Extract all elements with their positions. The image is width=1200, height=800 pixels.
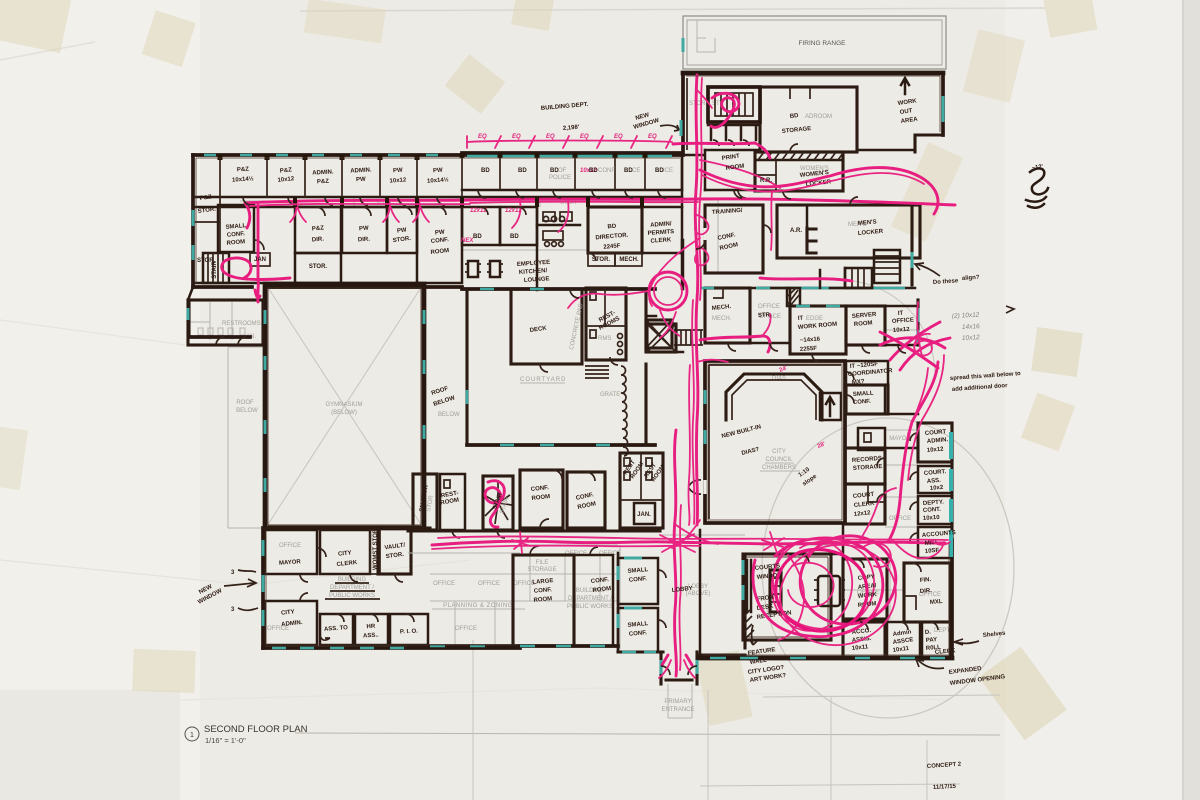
svg-text:PAY: PAY <box>926 637 938 644</box>
svg-text:OF: OF <box>558 168 567 174</box>
svg-text:CONF: CONF <box>598 168 615 174</box>
svg-text:P&Z: P&Z <box>317 179 330 186</box>
svg-text:COUNCIL: COUNCIL <box>765 457 793 463</box>
svg-text:OFFICE: OFFICE <box>478 581 500 587</box>
svg-text:MECH.: MECH. <box>619 257 639 263</box>
svg-text:DIR.: DIR. <box>920 588 933 595</box>
svg-text:2255F: 2255F <box>800 346 818 353</box>
svg-text:BD: BD <box>510 234 519 240</box>
svg-text:DIR.: DIR. <box>358 237 371 244</box>
svg-text:COURTYARD: COURTYARD <box>520 377 566 383</box>
svg-text:R.R.: R.R. <box>760 178 772 184</box>
svg-text:DIR.: DIR. <box>312 236 325 243</box>
svg-text:STOR.: STOR. <box>309 264 328 270</box>
svg-text:12x12: 12x12 <box>505 208 522 214</box>
svg-text:HR: HR <box>366 624 376 631</box>
svg-text:1: 1 <box>190 732 194 739</box>
svg-text:10SF: 10SF <box>925 548 940 555</box>
svg-text:10x10: 10x10 <box>923 515 941 522</box>
svg-text:align?: align? <box>962 275 980 282</box>
svg-text:CONT.: CONT. <box>923 507 942 514</box>
svg-text:EQ: EQ <box>580 134 589 140</box>
svg-text:ADMIN.: ADMIN. <box>312 169 334 176</box>
svg-text:BD: BD <box>607 224 617 231</box>
svg-text:POLICE: POLICE <box>549 175 571 181</box>
svg-text:P&Z: P&Z <box>237 167 250 174</box>
svg-text:ENTRANCE: ENTRANCE <box>661 707 694 713</box>
svg-text:MXL: MXL <box>930 599 943 606</box>
svg-text:RMS: RMS <box>598 336 611 342</box>
svg-text:OFFICE: OFFICE <box>455 626 477 632</box>
svg-text:GYMNASIUM: GYMNASIUM <box>325 402 362 408</box>
svg-text:ROOF: ROOF <box>236 400 254 406</box>
svg-text:BELOW: BELOW <box>438 412 460 418</box>
svg-text:ADMIN.: ADMIN. <box>350 167 372 174</box>
svg-text:EQ: EQ <box>546 134 555 140</box>
svg-text:P. I. O.: P. I. O. <box>400 629 419 636</box>
svg-text:10x12: 10x12 <box>389 177 407 184</box>
svg-text:BD: BD <box>518 168 527 174</box>
svg-text:BELOW: BELOW <box>236 408 258 414</box>
svg-text:JAN.: JAN. <box>637 512 651 518</box>
svg-text:PW: PW <box>435 229 446 236</box>
svg-text:CONF.: CONF. <box>853 399 872 406</box>
svg-text:(BELOW): (BELOW) <box>331 410 357 416</box>
svg-text:SECOND FLOOR PLAN: SECOND FLOOR PLAN <box>204 724 308 735</box>
svg-text:EQ: EQ <box>614 134 623 140</box>
svg-text:DEPARTMENT /: DEPARTMENT / <box>330 585 374 591</box>
svg-text:PW: PW <box>393 168 403 175</box>
svg-text:10x12: 10x12 <box>893 327 911 334</box>
svg-text:FIN.: FIN. <box>920 577 932 584</box>
svg-text:ADROOM: ADROOM <box>805 114 832 120</box>
svg-text:CHAMBERS: CHAMBERS <box>762 465 796 471</box>
svg-text:BD: BD <box>473 234 482 240</box>
svg-text:ST: ST <box>712 101 720 107</box>
svg-text:(2) 10x12: (2) 10x12 <box>952 312 980 320</box>
svg-text:ASS..: ASS.. <box>363 632 379 639</box>
svg-text:PW: PW <box>433 168 443 175</box>
svg-text:PW: PW <box>356 177 366 184</box>
svg-text:GRATE: GRATE <box>600 392 620 398</box>
svg-text:P&Z: P&Z <box>280 167 293 174</box>
svg-text:FIRING RANGE: FIRING RANGE <box>799 40 847 47</box>
svg-text:FILE: FILE <box>536 560 549 566</box>
svg-text:BD: BD <box>481 168 490 174</box>
svg-text:D.: D. <box>925 629 932 636</box>
svg-text:STORAGE: STORAGE <box>527 567 556 573</box>
svg-text:BD: BD <box>790 113 800 120</box>
svg-text:EQ: EQ <box>478 134 487 140</box>
svg-text:PUBLIC WORKS: PUBLIC WORKS <box>329 593 375 599</box>
svg-text:STOR: STOR <box>689 101 706 107</box>
svg-text:ICE: ICE <box>663 168 673 174</box>
svg-text:RESTROOMS: RESTROOMS <box>222 321 261 327</box>
svg-text:STAIR: STAIR <box>212 261 218 279</box>
svg-text:STR.: STR. <box>758 312 772 319</box>
svg-text:14x16: 14x16 <box>962 323 980 331</box>
svg-text:DEPT: DEPT <box>934 628 950 634</box>
svg-text:OFFICE: OFFICE <box>433 581 455 587</box>
svg-text:EQ: EQ <box>648 134 657 140</box>
svg-text:OFFICE: OFFICE <box>758 304 780 310</box>
svg-text:1/16" = 1'-0": 1/16" = 1'-0" <box>205 736 246 745</box>
svg-text:BD: BD <box>589 168 598 174</box>
svg-text:JAN: JAN <box>254 257 266 263</box>
svg-text:EDGE: EDGE <box>806 316 823 322</box>
svg-text:CE: CE <box>632 168 640 174</box>
svg-text:CITY: CITY <box>772 449 786 455</box>
svg-text:IT: IT <box>898 311 904 317</box>
svg-text:10x2: 10x2 <box>930 485 944 492</box>
svg-text:A.R.: A.R. <box>790 228 802 234</box>
svg-text:10x12: 10x12 <box>962 334 980 342</box>
svg-text:OFFICE: OFFICE <box>279 543 301 549</box>
svg-text:11/17/15: 11/17/15 <box>933 784 957 791</box>
svg-text:PLANNING & ZONING: PLANNING & ZONING <box>443 603 513 609</box>
svg-text:ASS.: ASS. <box>927 478 942 485</box>
svg-text:MECH.: MECH. <box>712 316 732 322</box>
svg-text:P&Z: P&Z <box>312 225 325 232</box>
svg-text:OFFICE: OFFICE <box>889 516 911 522</box>
svg-text:PW: PW <box>359 226 369 233</box>
svg-text:IT: IT <box>798 316 804 322</box>
svg-text:DIAS: DIAS <box>772 376 786 382</box>
svg-text:EQ: EQ <box>512 134 521 140</box>
